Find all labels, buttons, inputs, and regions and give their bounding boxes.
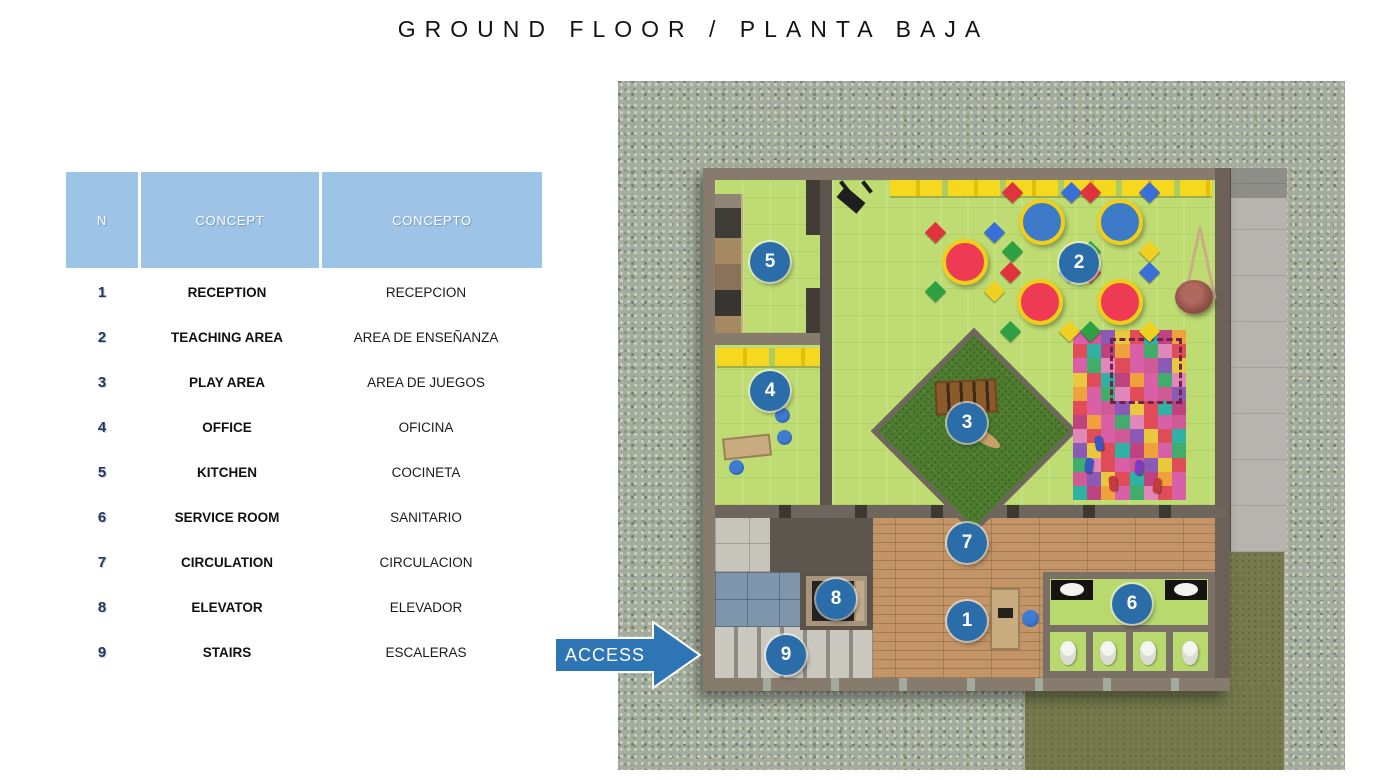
reception-desk — [990, 588, 1020, 650]
mat-cell — [1158, 429, 1172, 443]
mat-cell — [1087, 415, 1101, 429]
legend-row-concepto: RECEPCION — [316, 270, 536, 315]
toy-car — [1134, 460, 1143, 476]
sink-counter-left — [1051, 580, 1093, 600]
teaching-bench — [890, 180, 1212, 196]
mat-cell — [1101, 429, 1115, 443]
marker-kitchen: 5 — [750, 242, 790, 282]
floor-plan-photo: 123456789 — [618, 81, 1345, 770]
mat-cell — [1130, 429, 1144, 443]
toy-car — [1108, 476, 1118, 492]
legend-row-concept: STAIRS — [138, 630, 316, 675]
marker-elevator: 8 — [816, 579, 856, 619]
table-top — [1017, 279, 1063, 325]
page-title: GROUND FLOOR / PLANTA BAJA — [0, 16, 1387, 43]
legend-rows: 1 RECEPTION RECEPCION 2 TEACHING AREA AR… — [66, 270, 536, 675]
mat-cell — [1144, 415, 1158, 429]
marker-number: 8 — [831, 588, 842, 610]
mat-cell — [1172, 486, 1186, 500]
legend-row-concept: CIRCULATION — [138, 540, 316, 585]
concrete-pads — [715, 518, 770, 572]
mat-cell — [1115, 472, 1129, 486]
kitchen-counter — [715, 194, 743, 334]
legend-row-number: 7 — [66, 540, 138, 585]
bathroom-partition — [1050, 625, 1208, 632]
stall-divider — [1166, 632, 1173, 671]
mat-cell — [1172, 443, 1186, 457]
wall-office-teaching — [820, 180, 832, 518]
mat-cell — [1073, 443, 1087, 457]
reception-chair — [1022, 610, 1039, 627]
mat-cell — [1115, 429, 1129, 443]
legend-row-concept: ELEVATOR — [138, 585, 316, 630]
sink-counter-right — [1165, 580, 1207, 600]
office-floor — [715, 345, 820, 505]
legend-header-concepto: CONCEPTO — [322, 172, 542, 268]
mat-cell — [1073, 373, 1087, 387]
legend-row-concept: TEACHING AREA — [138, 315, 316, 360]
marker-number: 2 — [1074, 252, 1085, 274]
mat-cell — [1087, 358, 1101, 372]
mat-cell — [1073, 401, 1087, 415]
marker-reception: 1 — [947, 601, 987, 641]
toy-car — [1152, 478, 1162, 494]
legend-row-concepto: COCINETA — [316, 450, 536, 495]
legend-row-number: 6 — [66, 495, 138, 540]
marker-office: 4 — [750, 371, 790, 411]
mat-cell — [1158, 415, 1172, 429]
marker-number: 1 — [962, 610, 973, 632]
legend-row-number: 4 — [66, 405, 138, 450]
table-top — [1097, 199, 1143, 245]
mat-cell — [1073, 344, 1087, 358]
table-top — [1019, 199, 1065, 245]
legend-row: 9 STAIRS ESCALERAS — [66, 630, 536, 675]
legend-row-number: 5 — [66, 450, 138, 495]
building: 123456789 — [703, 168, 1230, 691]
mat-cell — [1144, 443, 1158, 457]
toilet — [1060, 641, 1076, 665]
legend-row-concept: KITCHEN — [138, 450, 316, 495]
mat-cell — [1087, 472, 1101, 486]
marker-circulation: 7 — [947, 523, 987, 563]
mat-cell — [1087, 486, 1101, 500]
table-top — [1097, 279, 1143, 325]
legend-row: 1 RECEPTION RECEPCION — [66, 270, 536, 315]
mat-cell — [1172, 472, 1186, 486]
legend-row: 5 KITCHEN COCINETA — [66, 450, 536, 495]
reception-monitor — [998, 608, 1013, 618]
legend-row: 6 SERVICE ROOM SANITARIO — [66, 495, 536, 540]
mat-cell — [1073, 429, 1087, 443]
legend-row-number: 9 — [66, 630, 138, 675]
mat-cell — [1144, 429, 1158, 443]
legend-row: 8 ELEVATOR ELEVADOR — [66, 585, 536, 630]
mat-cell — [1115, 415, 1129, 429]
wall-right — [1215, 168, 1230, 691]
mat-cell — [1073, 387, 1087, 401]
marker-number: 3 — [962, 412, 973, 434]
office-chair — [729, 460, 744, 475]
mat-cell — [1101, 415, 1115, 429]
elevator-shaft-wall — [770, 518, 873, 572]
toilet — [1182, 641, 1198, 665]
legend-row: 7 CIRCULATION CIRCULACION — [66, 540, 536, 585]
grass-patch-right — [1228, 552, 1284, 687]
marker-number: 5 — [765, 251, 776, 273]
legend-row-concept: OFFICE — [138, 405, 316, 450]
mat-cell — [1073, 486, 1087, 500]
access-arrow: ACCESS — [553, 619, 703, 691]
toilet — [1140, 641, 1156, 665]
marker-play-area: 3 — [947, 403, 987, 443]
access-label: ACCESS — [565, 645, 645, 665]
play-mat — [1073, 330, 1186, 500]
sidewalk — [1228, 168, 1287, 552]
mat-cell — [1087, 373, 1101, 387]
mat-cell — [1144, 458, 1158, 472]
mat-cell — [1130, 486, 1144, 500]
mat-cell — [1158, 458, 1172, 472]
office-bench — [717, 348, 820, 366]
mat-cell — [1172, 429, 1186, 443]
legend-row: 2 TEACHING AREA AREA DE ENSEÑANZA — [66, 315, 536, 360]
mat-cell — [1115, 458, 1129, 472]
marker-number: 6 — [1127, 593, 1138, 615]
legend-row: 4 OFFICE OFICINA — [66, 405, 536, 450]
legend-header-concept: CONCEPT — [141, 172, 319, 268]
legend-row-concepto: OFICINA — [316, 405, 536, 450]
mat-cell — [1087, 401, 1101, 415]
legend-row-concept: PLAY AREA — [138, 360, 316, 405]
mat-cell — [1130, 443, 1144, 457]
legend-header-row: N CONCEPT CONCEPTO — [66, 172, 536, 268]
legend-row-concepto: SANITARIO — [316, 495, 536, 540]
legend-row-concepto: AREA DE ENSEÑANZA — [316, 315, 536, 360]
stall-divider — [1126, 632, 1133, 671]
marker-stairs: 9 — [766, 635, 806, 675]
mat-cell — [1172, 458, 1186, 472]
legend-header-n: N — [66, 172, 138, 268]
legend-row-concept: RECEPTION — [138, 270, 316, 315]
legend-row: 3 PLAY AREA AREA DE JUEGOS — [66, 360, 536, 405]
legend-row-number: 3 — [66, 360, 138, 405]
mat-cell — [1073, 415, 1087, 429]
wall-left — [703, 168, 715, 691]
office-chair — [777, 430, 792, 445]
mat-cell — [1073, 358, 1087, 372]
legend-row-number: 2 — [66, 315, 138, 360]
marker-number: 7 — [962, 532, 973, 554]
mat-cell — [1130, 415, 1144, 429]
wall-bottom — [703, 678, 1230, 691]
legend-row-concepto: AREA DE JUEGOS — [316, 360, 536, 405]
stall-divider — [1086, 632, 1093, 671]
mat-cell — [1115, 443, 1129, 457]
toilet — [1100, 641, 1116, 665]
mat-cell — [1087, 387, 1101, 401]
legend-row-number: 1 — [66, 270, 138, 315]
legend-row-concepto: ELEVADOR — [316, 585, 536, 630]
wall-kitchen-office — [715, 333, 820, 345]
wall-top — [703, 168, 1230, 180]
legend-table: N CONCEPT CONCEPTO 1 RECEPTION RECEPCION… — [66, 172, 536, 675]
elevator-panel — [856, 581, 864, 621]
marker-teaching-area: 2 — [1059, 243, 1099, 283]
table-top — [942, 239, 988, 285]
marker-number: 9 — [781, 644, 792, 666]
legend-row-concept: SERVICE ROOM — [138, 495, 316, 540]
mat-cell — [1158, 443, 1172, 457]
mat-cell — [1073, 472, 1087, 486]
legend-row-number: 8 — [66, 585, 138, 630]
mat-cell — [1172, 415, 1186, 429]
grass-patch-bottom — [1025, 687, 1284, 770]
mat-cell — [1087, 344, 1101, 358]
play-mat-border-square — [1110, 338, 1182, 404]
bean-bag — [1175, 280, 1213, 314]
marker-number: 4 — [765, 380, 776, 402]
office-chair — [775, 408, 790, 423]
marker-service-room: 6 — [1112, 584, 1152, 624]
mat-cell — [1101, 458, 1115, 472]
legend-row-concepto: ESCALERAS — [316, 630, 536, 675]
legend-row-concepto: CIRCULACION — [316, 540, 536, 585]
